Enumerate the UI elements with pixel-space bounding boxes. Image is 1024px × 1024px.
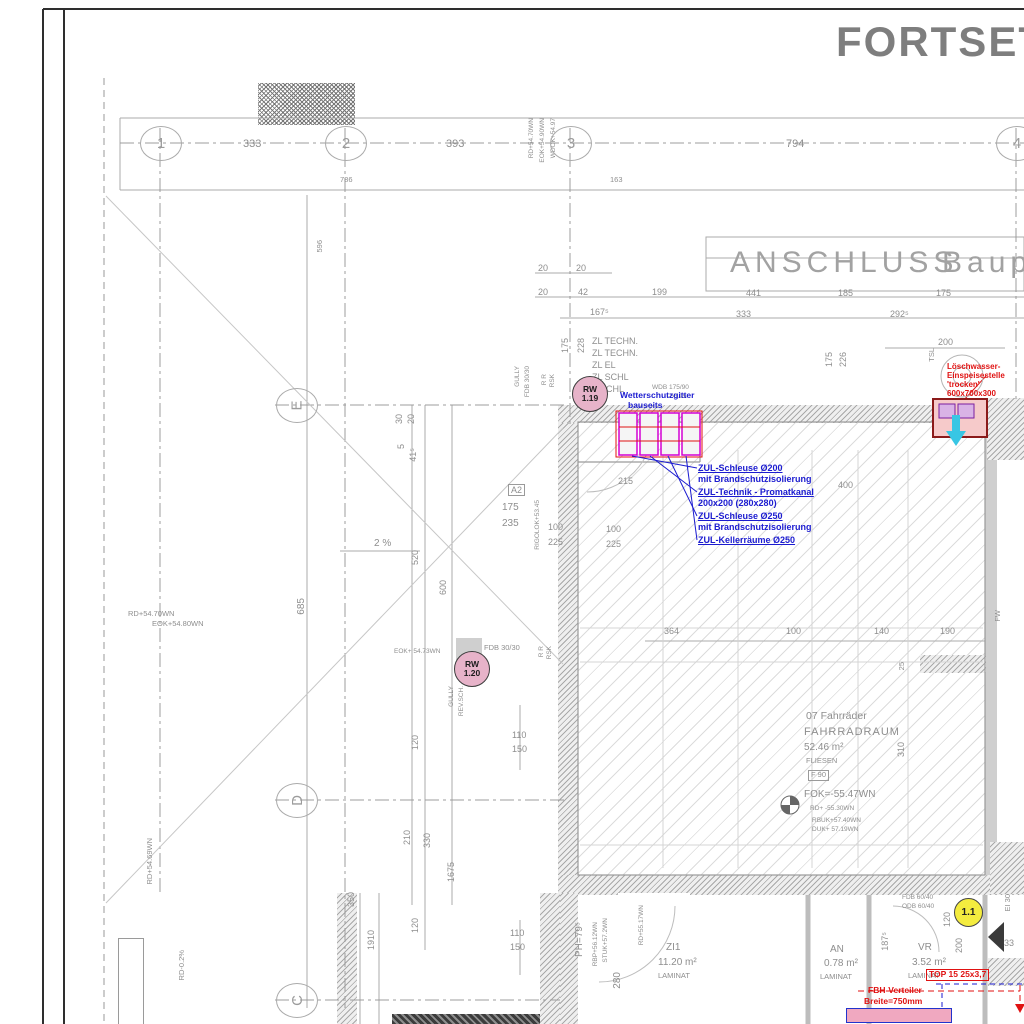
dim-label: 685: [296, 598, 308, 615]
pipe-label: R R: [541, 374, 548, 385]
elevation-label: STUK+57.2WN: [602, 918, 609, 963]
floorplan-sheet: FORTSETZ ANSCHLUSS Baupl 1 2 3 4 E D C 3…: [0, 0, 1024, 1024]
zul-note: mit Brandschutzisolierung: [698, 474, 812, 484]
dim-label: 350: [346, 892, 356, 907]
axis-C-label: C: [289, 995, 306, 1006]
elevation-label: EOK+ 54.73WN: [394, 648, 440, 655]
dim-label: 1910: [366, 930, 376, 950]
dim-label: 20: [576, 263, 586, 273]
dim-label: 596: [316, 240, 325, 253]
axis-3-label: 3: [567, 135, 575, 152]
zul-note: ZUL-Schleuse Ø250: [698, 511, 783, 521]
dim-label: 175: [824, 352, 834, 367]
gully-label: REV.SCH.: [458, 686, 465, 716]
pipe-label: RSK: [549, 374, 556, 387]
elevation-label: FOK=-55.47WN: [804, 789, 875, 801]
fbh-verteiler-symbol: [846, 1008, 952, 1023]
dim-label: 210: [402, 830, 412, 845]
dim-label: 175: [560, 338, 570, 353]
loeschwasser-note: Löschwasser-: [947, 362, 1000, 371]
room-area: 11.20 m²: [658, 957, 697, 969]
vent-label: ZL TECHN.: [592, 336, 638, 346]
dim-label: 215: [618, 476, 633, 486]
dim-label: 786: [340, 176, 353, 185]
dim-label: 25: [898, 662, 907, 670]
dim-label: 100: [606, 524, 621, 534]
rw-number: 1.19: [582, 394, 599, 403]
axis-E-label: E: [288, 400, 305, 410]
room-number: 07 Fahrräder: [806, 710, 867, 722]
elevation-label: FDB 30/30: [484, 644, 520, 653]
dim-label: 190: [940, 626, 955, 636]
fbh-verteiler-note: FBH-Verteiler: [868, 986, 922, 996]
dim-label: 110: [512, 730, 526, 740]
room-floor-finish: LAMINAT: [658, 972, 690, 981]
zul-note: mit Brandschutzisolierung: [698, 522, 812, 532]
loeschwasser-note: Einspeisestelle: [947, 371, 1005, 380]
anschluss-bauplan-label: Baupl: [942, 246, 1024, 281]
gully-label: GULLY: [448, 686, 455, 707]
top15-note: TOP 15 25x3,7: [926, 969, 989, 981]
elevation-label: EOK+54.80WN: [152, 620, 203, 629]
dim-label: 199: [652, 287, 667, 297]
dim-label: 393: [446, 138, 464, 151]
vent-label: ZL EL: [592, 360, 616, 370]
supply-air-grilles: [616, 411, 702, 457]
dim-label: 175: [502, 502, 519, 514]
dim-label: 33: [1004, 938, 1014, 948]
elevation-label: RD+ -55.30WN: [810, 805, 854, 812]
room-name: VR: [918, 942, 932, 954]
dim-label: 167⁵: [590, 307, 609, 317]
room-floor-finish: LAMINAT: [820, 973, 852, 982]
ramp-diagonals: [106, 196, 563, 903]
dim-label: 200: [938, 337, 953, 347]
gully-size-label: FDB 30/30: [524, 366, 531, 397]
axis-bubble-E: E: [276, 388, 318, 423]
fire-rating-tag: F 90: [808, 770, 829, 781]
zul-leaders: [632, 456, 697, 540]
dim-label: 600: [438, 580, 448, 595]
dim-label: 20: [538, 263, 548, 273]
axis-bubble-1: 1: [140, 126, 182, 161]
zul-note: 200x200 (280x280): [698, 498, 777, 508]
dim-label: 187⁵: [880, 932, 890, 951]
note-bauseits: bauseits: [628, 401, 663, 411]
elevation-label: RD+54.70WN: [528, 118, 535, 158]
rw-marker-1-20: RW 1.20: [454, 651, 490, 687]
fw-label: FW: [994, 610, 1003, 622]
dim-label: 225: [606, 539, 621, 549]
elevation-label: RBUK+57.40WN: [812, 817, 861, 824]
axis-1-label: 1: [157, 135, 165, 152]
dim-label: 292⁵: [890, 309, 909, 319]
dim-label: 150: [510, 942, 525, 952]
gully-label: GULLY: [514, 366, 521, 387]
axis-bubble-2: 2: [325, 126, 367, 161]
dim-label: 333: [243, 138, 261, 151]
dim-label: 185: [838, 288, 853, 298]
dim-label: 30: [394, 414, 404, 424]
dim-label: 110: [510, 928, 524, 938]
room-floor-finish: FLIESEN: [806, 757, 837, 766]
dim-label: 794: [786, 138, 804, 151]
elevation-label: RD+54.70WN: [128, 610, 174, 619]
dim-label: 100: [548, 522, 563, 532]
fbh-breite-note: Breite=750mm: [864, 997, 922, 1007]
dim-label: 120: [410, 918, 420, 933]
vent-label: ZL TECHN.: [592, 348, 638, 358]
dim-label: 520: [410, 550, 420, 565]
axis-2-label: 2: [342, 135, 350, 152]
pipe-label: R R: [538, 646, 545, 657]
dim-label: 228: [576, 338, 586, 353]
dim-label: 400: [838, 480, 853, 490]
zul-note: ZUL-Technik - Promatkanal: [698, 487, 814, 497]
survey-point-marker: [781, 796, 799, 814]
elevation-label: RD-0.2%: [178, 950, 187, 980]
axis-bubble-D: D: [276, 783, 318, 818]
fire-rating-label: EI 30: [1004, 894, 1013, 912]
elevation-label: ODB 60/40: [902, 903, 934, 910]
dim-label: 140: [874, 626, 889, 636]
sheet-title: FORTSETZ: [836, 18, 1024, 66]
dim-label: 120: [942, 912, 952, 927]
dim-label: 235: [502, 518, 519, 530]
dim-label: 333: [736, 309, 751, 319]
dim-label: 280: [612, 972, 624, 989]
elevation-label: EOK+54.90WN: [539, 118, 546, 163]
position-number: 1.1: [962, 907, 976, 918]
room-area: 0.78 m²: [824, 958, 858, 970]
dim-label: 226: [838, 352, 848, 367]
room-area: 52.46 m²: [804, 742, 843, 754]
dim-label: 1675: [446, 862, 456, 882]
dim-label: 200: [954, 938, 964, 953]
dim-label: 441: [746, 288, 761, 298]
room-name: FAHRRADRAUM: [804, 726, 900, 739]
dim-label: 225: [548, 537, 563, 547]
slope-label: 2 %: [374, 538, 391, 550]
dim-label: 330: [422, 833, 432, 848]
axis-D-label: D: [289, 795, 306, 806]
rw-marker-1-19: RW 1.19: [572, 376, 608, 412]
axis-bubble-3: 3: [550, 126, 592, 161]
dim-label: 20: [406, 414, 416, 424]
elevation-label: FDB 60/40: [902, 894, 933, 901]
zul-note: ZUL-Schleuse Ø200: [698, 463, 783, 473]
a2-marker: A2: [508, 484, 525, 496]
dim-label: 310: [896, 742, 906, 757]
rw-number: 1.20: [464, 669, 481, 678]
position-marker-1-1: 1.1: [954, 898, 983, 927]
elevation-label: RBP+56.12WN: [592, 922, 599, 966]
pipe-label: RSK: [546, 646, 553, 659]
dim-label: 364: [664, 626, 679, 636]
dim-label: 175: [936, 288, 951, 298]
loeschwasser-note: 600x700x300: [947, 389, 996, 398]
elevation-label: RD+55.17WN: [638, 905, 645, 945]
dim-label: 20: [538, 287, 548, 297]
door-triangle-marker: [988, 922, 1004, 952]
dim-label: 163: [610, 176, 623, 185]
elevation-label: RIGOLOK+53.45: [534, 500, 541, 550]
tsl-label: TSL: [928, 348, 937, 362]
room-area: 3.52 m²: [912, 957, 946, 969]
room-name: AN: [830, 944, 844, 956]
room-name: ZI1: [666, 942, 680, 954]
loeschwasser-note: 'trocken': [947, 380, 980, 389]
axis-4-label: 4: [1013, 135, 1021, 152]
dim-label: 120: [410, 735, 420, 750]
elevation-label: DUK+ 57.19WN: [812, 826, 858, 833]
parapet-label: PH=79⁵: [574, 922, 586, 957]
dim-label: 5: [396, 444, 406, 449]
anschluss-label: ANSCHLUSS: [730, 246, 958, 281]
dim-label: 41⁵: [408, 448, 418, 462]
dim-label: 150: [512, 744, 527, 754]
door-arcs: [587, 426, 939, 982]
axis-bubble-C: C: [276, 983, 318, 1018]
zul-note: ZUL-Kellerräume Ø250: [698, 535, 795, 545]
dim-label: 100: [786, 626, 801, 636]
dim-label: 42: [578, 287, 588, 297]
elevation-label: RD+54.69WN: [146, 838, 155, 884]
